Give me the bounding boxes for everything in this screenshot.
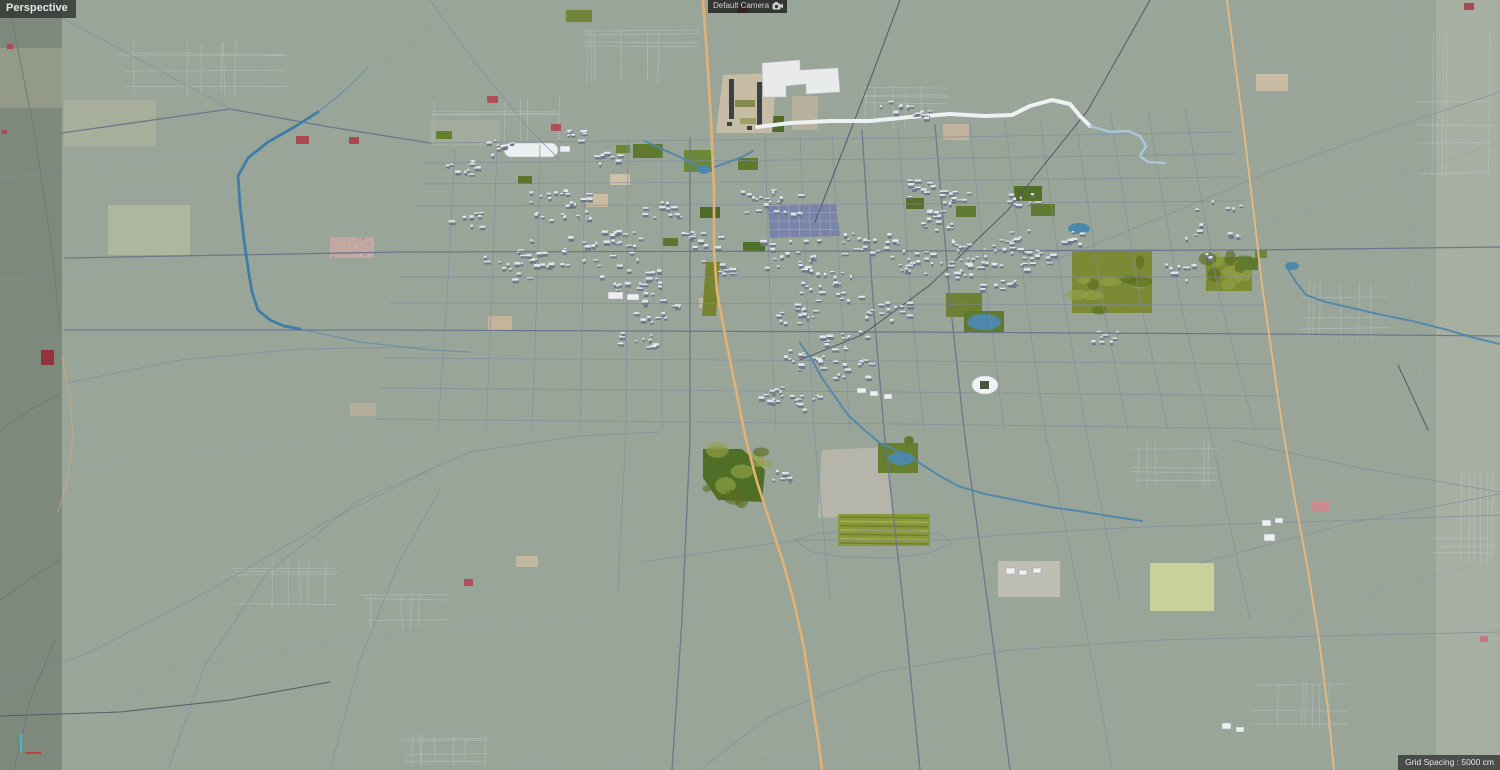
camera-label-text: Default Camera [713,1,769,11]
camera-name-label[interactable]: Default Camera [708,0,787,13]
landmarks-layer [972,376,998,394]
viewport-mode-label[interactable]: Perspective [0,0,76,18]
viewport-3d[interactable]: Perspective Default Camera Grid Spacing … [0,0,1500,770]
city-map-render [0,0,1500,770]
grid-spacing-label: Grid Spacing : 5000 cm [1398,755,1500,770]
camera-icon [772,2,783,10]
